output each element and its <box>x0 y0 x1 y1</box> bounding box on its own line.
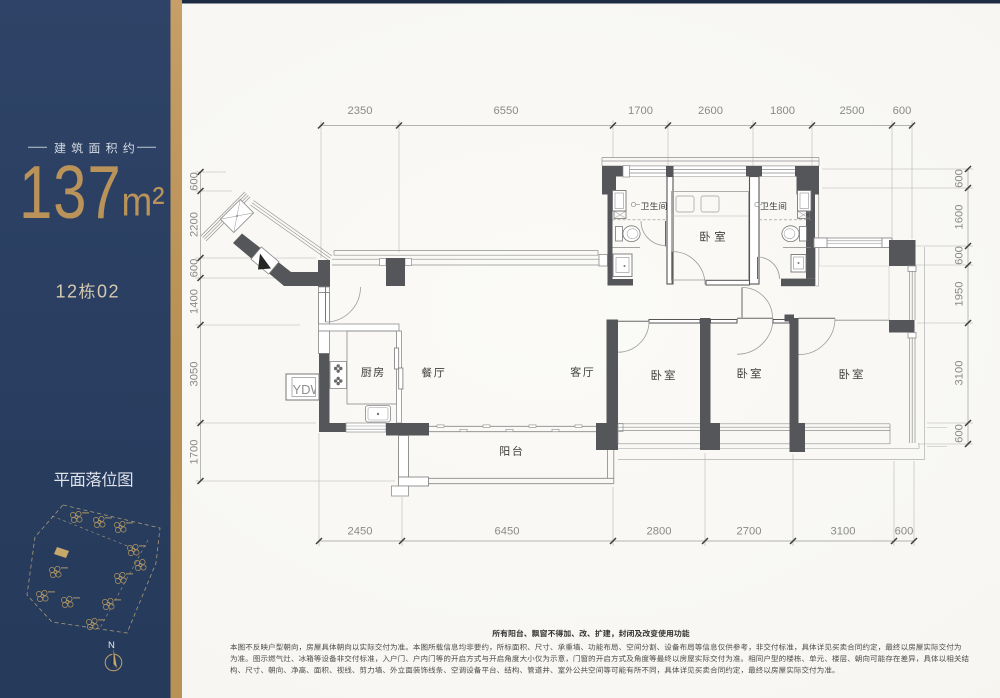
svg-text:1700: 1700 <box>189 440 201 465</box>
svg-text:3100: 3100 <box>954 361 966 386</box>
svg-text:1600: 1600 <box>954 205 966 230</box>
svg-text:1950: 1950 <box>954 282 966 307</box>
svg-text:600: 600 <box>954 246 966 265</box>
svg-text:600: 600 <box>189 172 201 191</box>
svg-text:600: 600 <box>189 259 201 278</box>
svg-text:N: N <box>108 640 115 651</box>
svg-text:2800: 2800 <box>647 526 672 538</box>
svg-text:2200: 2200 <box>189 212 201 237</box>
svg-text:2600: 2600 <box>698 105 723 117</box>
svg-text:600: 600 <box>954 424 966 443</box>
svg-text:3100: 3100 <box>831 526 856 538</box>
svg-text:1800: 1800 <box>770 105 795 117</box>
svg-text:2450: 2450 <box>348 526 373 538</box>
svg-text:3050: 3050 <box>189 362 201 387</box>
svg-text:6550: 6550 <box>494 105 519 117</box>
svg-text:600: 600 <box>954 169 966 188</box>
svg-text:137: 137 <box>19 152 121 235</box>
svg-text:02: 02 <box>97 282 120 302</box>
svg-text:2700: 2700 <box>737 526 762 538</box>
svg-text:2500: 2500 <box>840 105 865 117</box>
svg-text:12: 12 <box>56 282 79 302</box>
svg-text:600: 600 <box>893 105 912 117</box>
svg-text:6450: 6450 <box>495 526 520 538</box>
svg-text:2350: 2350 <box>348 105 373 117</box>
svg-text:m²: m² <box>122 180 165 225</box>
svg-text:1400: 1400 <box>189 289 201 314</box>
svg-text:600: 600 <box>895 526 914 538</box>
svg-text:1700: 1700 <box>628 105 653 117</box>
